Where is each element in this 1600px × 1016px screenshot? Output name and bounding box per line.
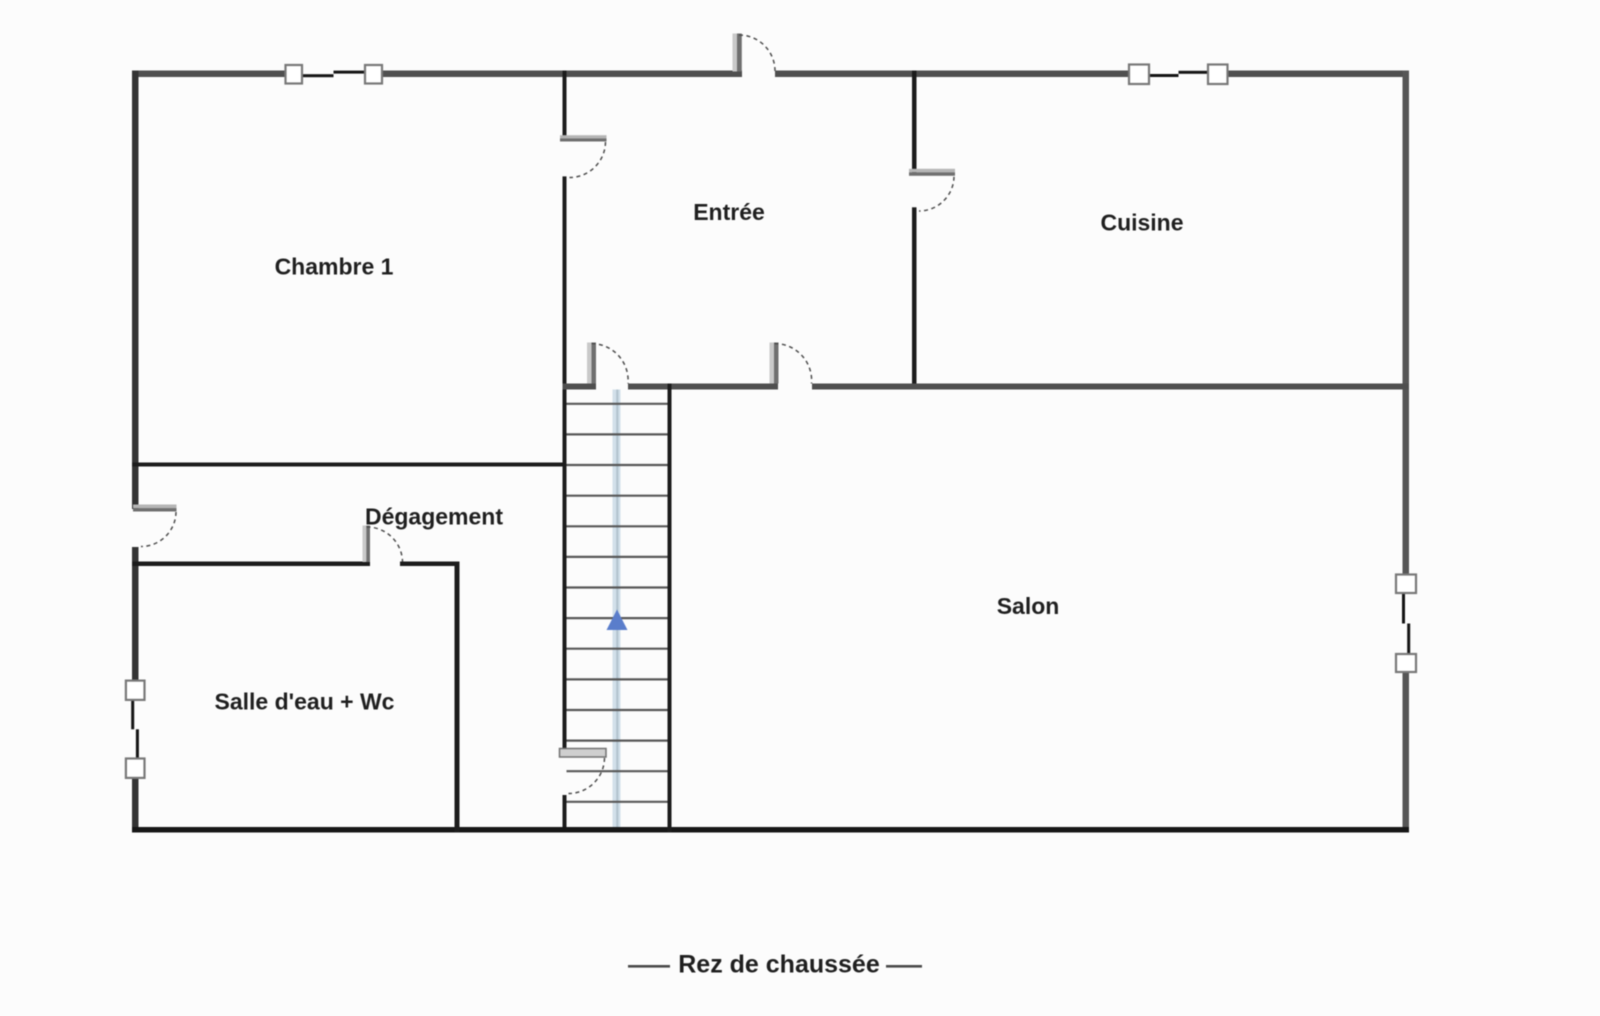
svg-text:Dégagement: Dégagement — [365, 504, 503, 530]
svg-text:Salle d'eau + Wc: Salle d'eau + Wc — [215, 689, 395, 715]
svg-text:Rez de chaussée: Rez de chaussée — [678, 951, 880, 979]
svg-text:Entrée: Entrée — [693, 199, 765, 225]
svg-text:Chambre 1: Chambre 1 — [275, 254, 394, 280]
svg-text:Cuisine: Cuisine — [1100, 210, 1183, 236]
svg-text:Salon: Salon — [997, 593, 1060, 619]
